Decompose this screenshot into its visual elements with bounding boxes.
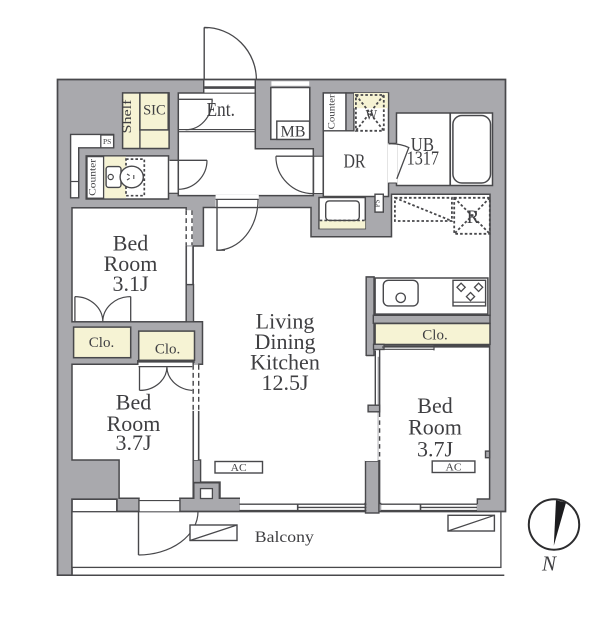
svg-text:12.5J: 12.5J: [261, 370, 309, 395]
svg-text:PS: PS: [373, 199, 381, 207]
svg-text:Ent.: Ent.: [206, 99, 235, 121]
svg-text:3.7J: 3.7J: [417, 436, 454, 461]
svg-text:Counter: Counter: [88, 158, 98, 196]
svg-text:1317: 1317: [407, 147, 439, 169]
svg-text:Clo.: Clo.: [89, 335, 114, 351]
svg-text:DR: DR: [344, 151, 367, 173]
svg-text:3.7J: 3.7J: [115, 430, 152, 455]
svg-text:AC: AC: [446, 461, 462, 473]
svg-text:N: N: [541, 551, 557, 575]
svg-text:Clo.: Clo.: [422, 327, 447, 343]
svg-text:SIC: SIC: [143, 102, 166, 118]
svg-text:Counter: Counter: [328, 93, 338, 129]
svg-text:MB: MB: [281, 123, 306, 140]
svg-text:Clo.: Clo.: [155, 342, 180, 358]
svg-text:PS: PS: [103, 137, 111, 146]
svg-text:3.1J: 3.1J: [112, 271, 149, 296]
svg-text:Balcony: Balcony: [255, 529, 314, 546]
svg-text:W: W: [366, 108, 378, 124]
svg-text:AC: AC: [231, 462, 247, 474]
svg-text:Shelf: Shelf: [120, 98, 134, 133]
svg-text:R: R: [467, 208, 480, 228]
